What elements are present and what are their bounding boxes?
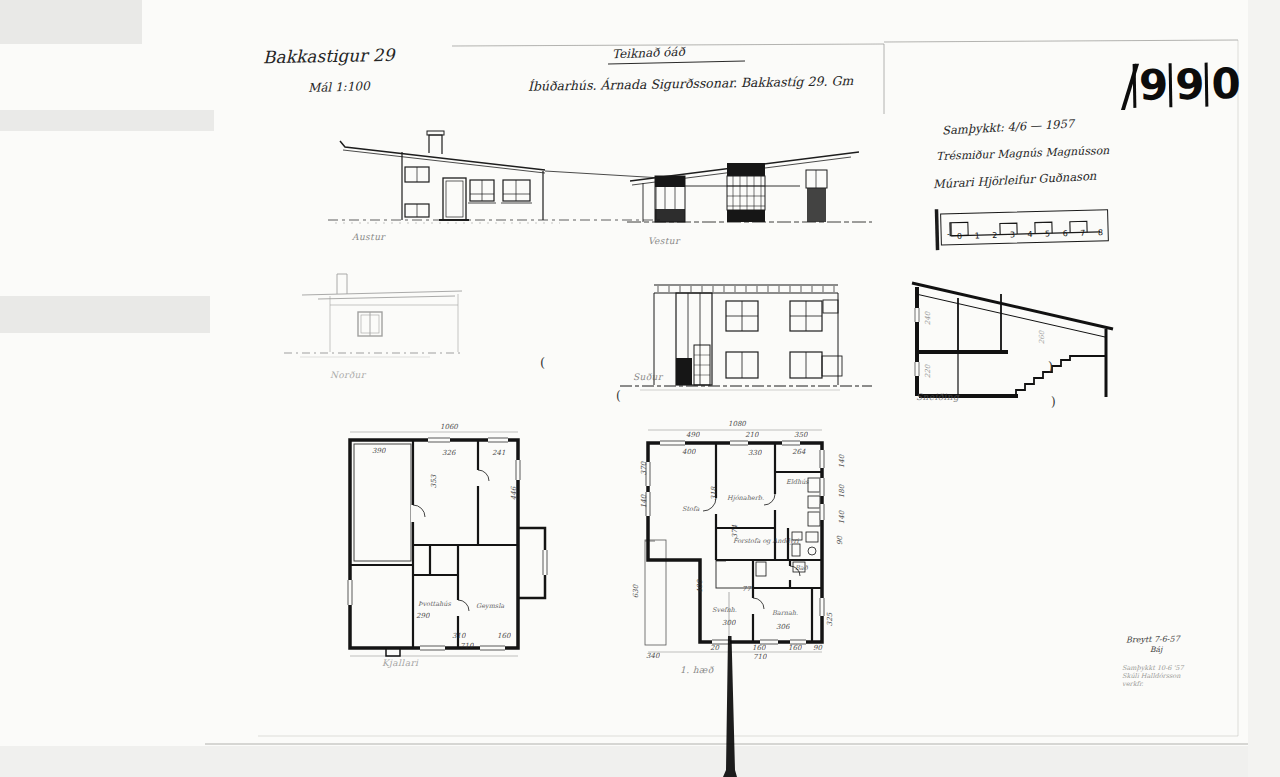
south-glazed-entry	[676, 293, 712, 385]
caption-south: Suður	[633, 372, 662, 382]
west-window-left	[655, 176, 685, 222]
scale-tick: 0	[957, 233, 962, 241]
south-upper-windows	[726, 300, 838, 331]
scale-note: Mál 1:100	[308, 79, 370, 95]
scale-tick: 1	[975, 232, 980, 240]
west-window-right	[806, 170, 827, 222]
address-title: Bakkastigur 29	[263, 45, 395, 67]
scale-tick: 4	[1027, 231, 1032, 239]
stamp-digit: 9	[1133, 63, 1170, 108]
scale-tick: 6	[1063, 230, 1068, 238]
chimney-glyph	[427, 131, 444, 154]
revision-initials: Báj	[1150, 646, 1162, 654]
caption-section: Sneiðing	[916, 392, 959, 402]
first-floor-plan-drawing	[645, 430, 824, 652]
scale-tick: 8	[1098, 229, 1103, 237]
scale-tick: 2	[992, 232, 997, 240]
caption-west: Vestur	[648, 236, 680, 246]
blueprint-sheet: Bakkastigur 29 Mál 1:100 Teiknað óáð Íbú…	[0, 0, 1280, 777]
east-elevation-drawing	[328, 131, 664, 223]
footnote-line-2: Skúli Halldórsson	[1122, 673, 1180, 680]
west-glazed-center	[727, 163, 765, 222]
caption-first-floor: 1. hæð	[680, 665, 714, 675]
east-windows	[405, 167, 532, 217]
entry-door-glyph	[439, 178, 469, 220]
south-lower-windows	[726, 352, 842, 378]
stamp-digit: 9	[1169, 63, 1206, 108]
footnote-line-1: Samþykkt 10-6 '57	[1122, 665, 1184, 672]
drawing-lines	[0, 0, 1280, 777]
archive-stamp-990: 990	[1128, 62, 1242, 110]
scale-bar-minus: -	[947, 230, 950, 239]
revision-note: Breytt 7-6-57	[1126, 636, 1180, 645]
drawn-note: Teiknað óáð	[612, 45, 685, 62]
footnote-line-3: verkfr.	[1122, 681, 1143, 688]
west-elevation-drawing	[627, 152, 872, 222]
scale-tick: 3	[1010, 231, 1015, 239]
north-elevation-drawing	[284, 274, 462, 357]
section-drawing	[912, 283, 1113, 397]
caption-basement: Kjallari	[382, 658, 418, 668]
caption-north: Norður	[330, 370, 366, 380]
basement-plan-drawing	[348, 432, 547, 656]
fold-crease	[723, 592, 737, 777]
scale-tick: 5	[1045, 230, 1050, 238]
caption-east: Austur	[352, 232, 385, 242]
scale-bar-drawing	[936, 205, 1108, 250]
scale-tick: 7	[1080, 230, 1085, 238]
stamp-digit: 0	[1205, 62, 1242, 107]
